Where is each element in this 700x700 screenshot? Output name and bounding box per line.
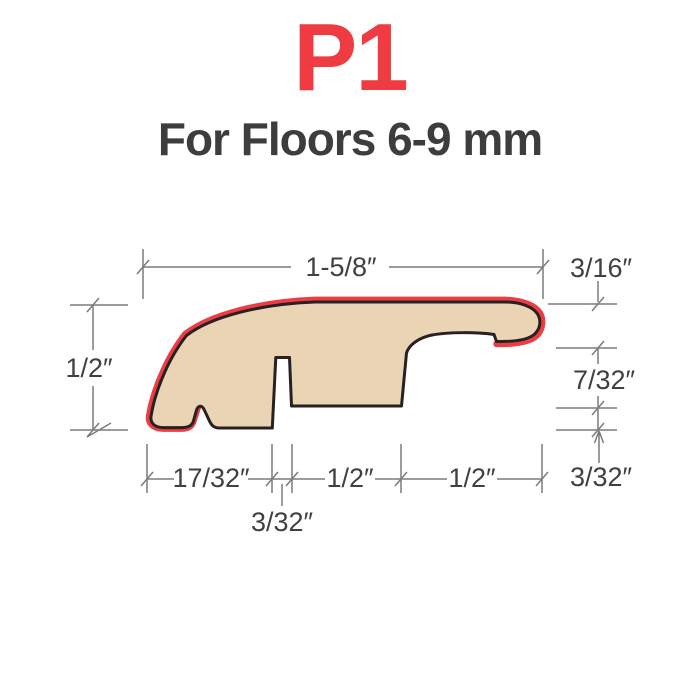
dim-label-right-gap-height: 7/32″ xyxy=(573,365,636,395)
dim-label-bottom-right-width: 1/2″ xyxy=(448,463,496,493)
dim-label-bottom-slot-width: 3/32″ xyxy=(251,507,314,537)
molding-profile-diagram: P1 For Floors 6-9 mm xyxy=(0,0,700,700)
dim-label-left-height: 1/2″ xyxy=(65,353,113,383)
dim-label-top-width: 1-5/8″ xyxy=(305,252,377,282)
dim-label-bottom-mid-width: 1/2″ xyxy=(326,463,374,493)
dim-label-bottom-left-width: 17/32″ xyxy=(172,463,250,493)
dim-label-top-right-thickness: 3/16″ xyxy=(570,253,633,283)
dim-label-right-rabbet-depth: 3/32″ xyxy=(570,462,633,492)
cross-section-drawing: 1-5/8″ 3/16″ 1/2″ 7/32″ 3/32″ 17/32″ 3/3… xyxy=(0,0,700,700)
